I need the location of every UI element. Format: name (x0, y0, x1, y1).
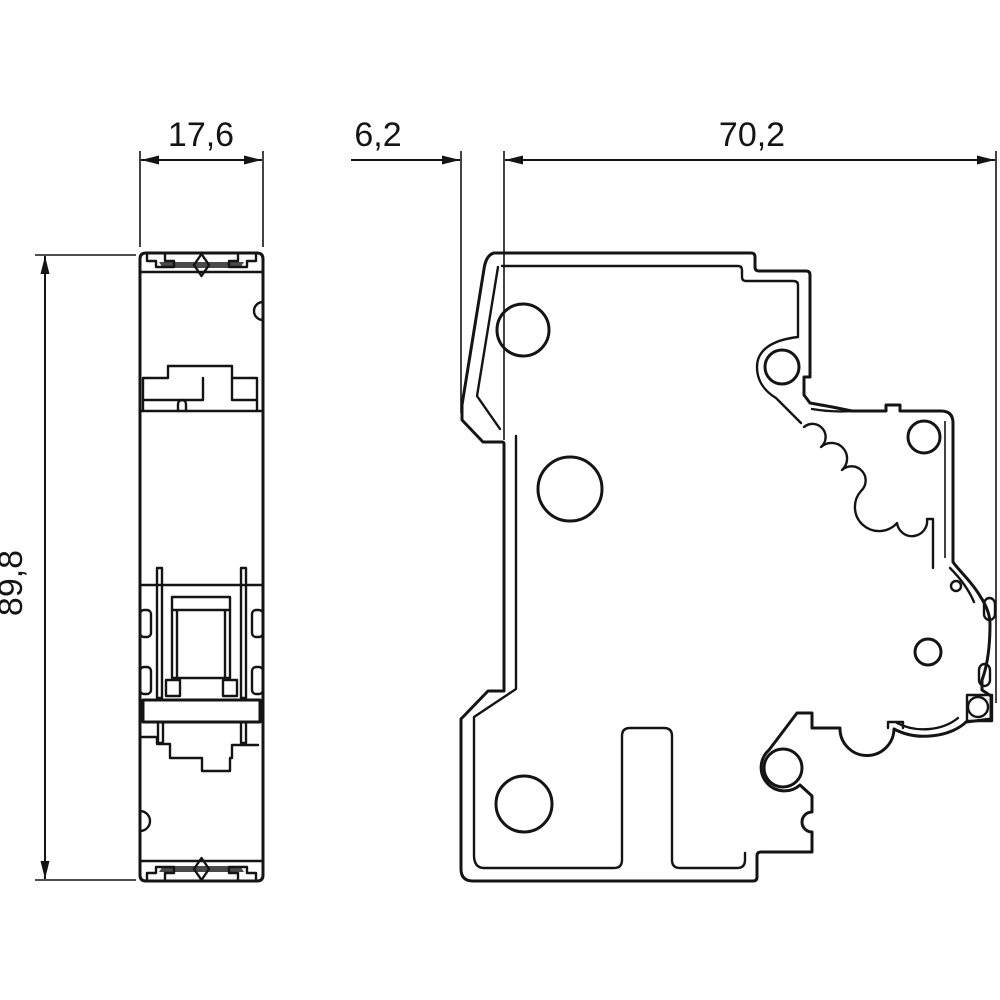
dim-body-depth: 70,2 (505, 116, 995, 165)
dimension-drawing: 17,6 6,2 70,2 89,8 (0, 0, 1000, 1000)
dim-front-width: 17,6 (141, 116, 262, 165)
drawing-canvas: 17,6 6,2 70,2 89,8 (0, 0, 1000, 1000)
upper-terminal (140, 366, 263, 411)
toggle-window (140, 568, 263, 722)
hole-foot (764, 749, 802, 787)
dim-height: 89,8 (0, 256, 50, 879)
hole-hook (765, 350, 799, 384)
top-inner-wall-and-hook (502, 266, 801, 423)
left-rail (157, 568, 162, 698)
side-notch (140, 667, 151, 694)
side-view (461, 253, 995, 881)
front-view (140, 253, 263, 881)
dim-body-depth-label: 70,2 (719, 116, 785, 154)
hole-plateau (908, 421, 940, 453)
hole-middle (538, 457, 602, 521)
right-rail (241, 568, 246, 698)
inner-wall-front-bottom (474, 436, 745, 868)
dim-front-width-label: 17,6 (168, 116, 234, 154)
bottom-din-clip (140, 858, 263, 881)
side-notch (140, 610, 151, 637)
dimension-annotations: 17,6 6,2 70,2 89,8 (0, 116, 996, 880)
hole-clip-area (915, 639, 941, 665)
top-din-clip (140, 253, 263, 276)
lower-terminal (140, 722, 258, 771)
dim-toggle-projection-label: 6,2 (354, 116, 401, 154)
side-notch (252, 610, 263, 637)
side-notch (252, 667, 263, 694)
dim-toggle-projection: 6,2 (351, 116, 460, 165)
toggle-base-bar (143, 700, 260, 722)
scalloped-pocket-edge (804, 424, 933, 568)
clip-tab-hole (968, 697, 988, 717)
dim-height-label: 89,8 (0, 550, 30, 616)
hole-bottom-left (496, 776, 552, 832)
clip-pivot (951, 581, 961, 591)
